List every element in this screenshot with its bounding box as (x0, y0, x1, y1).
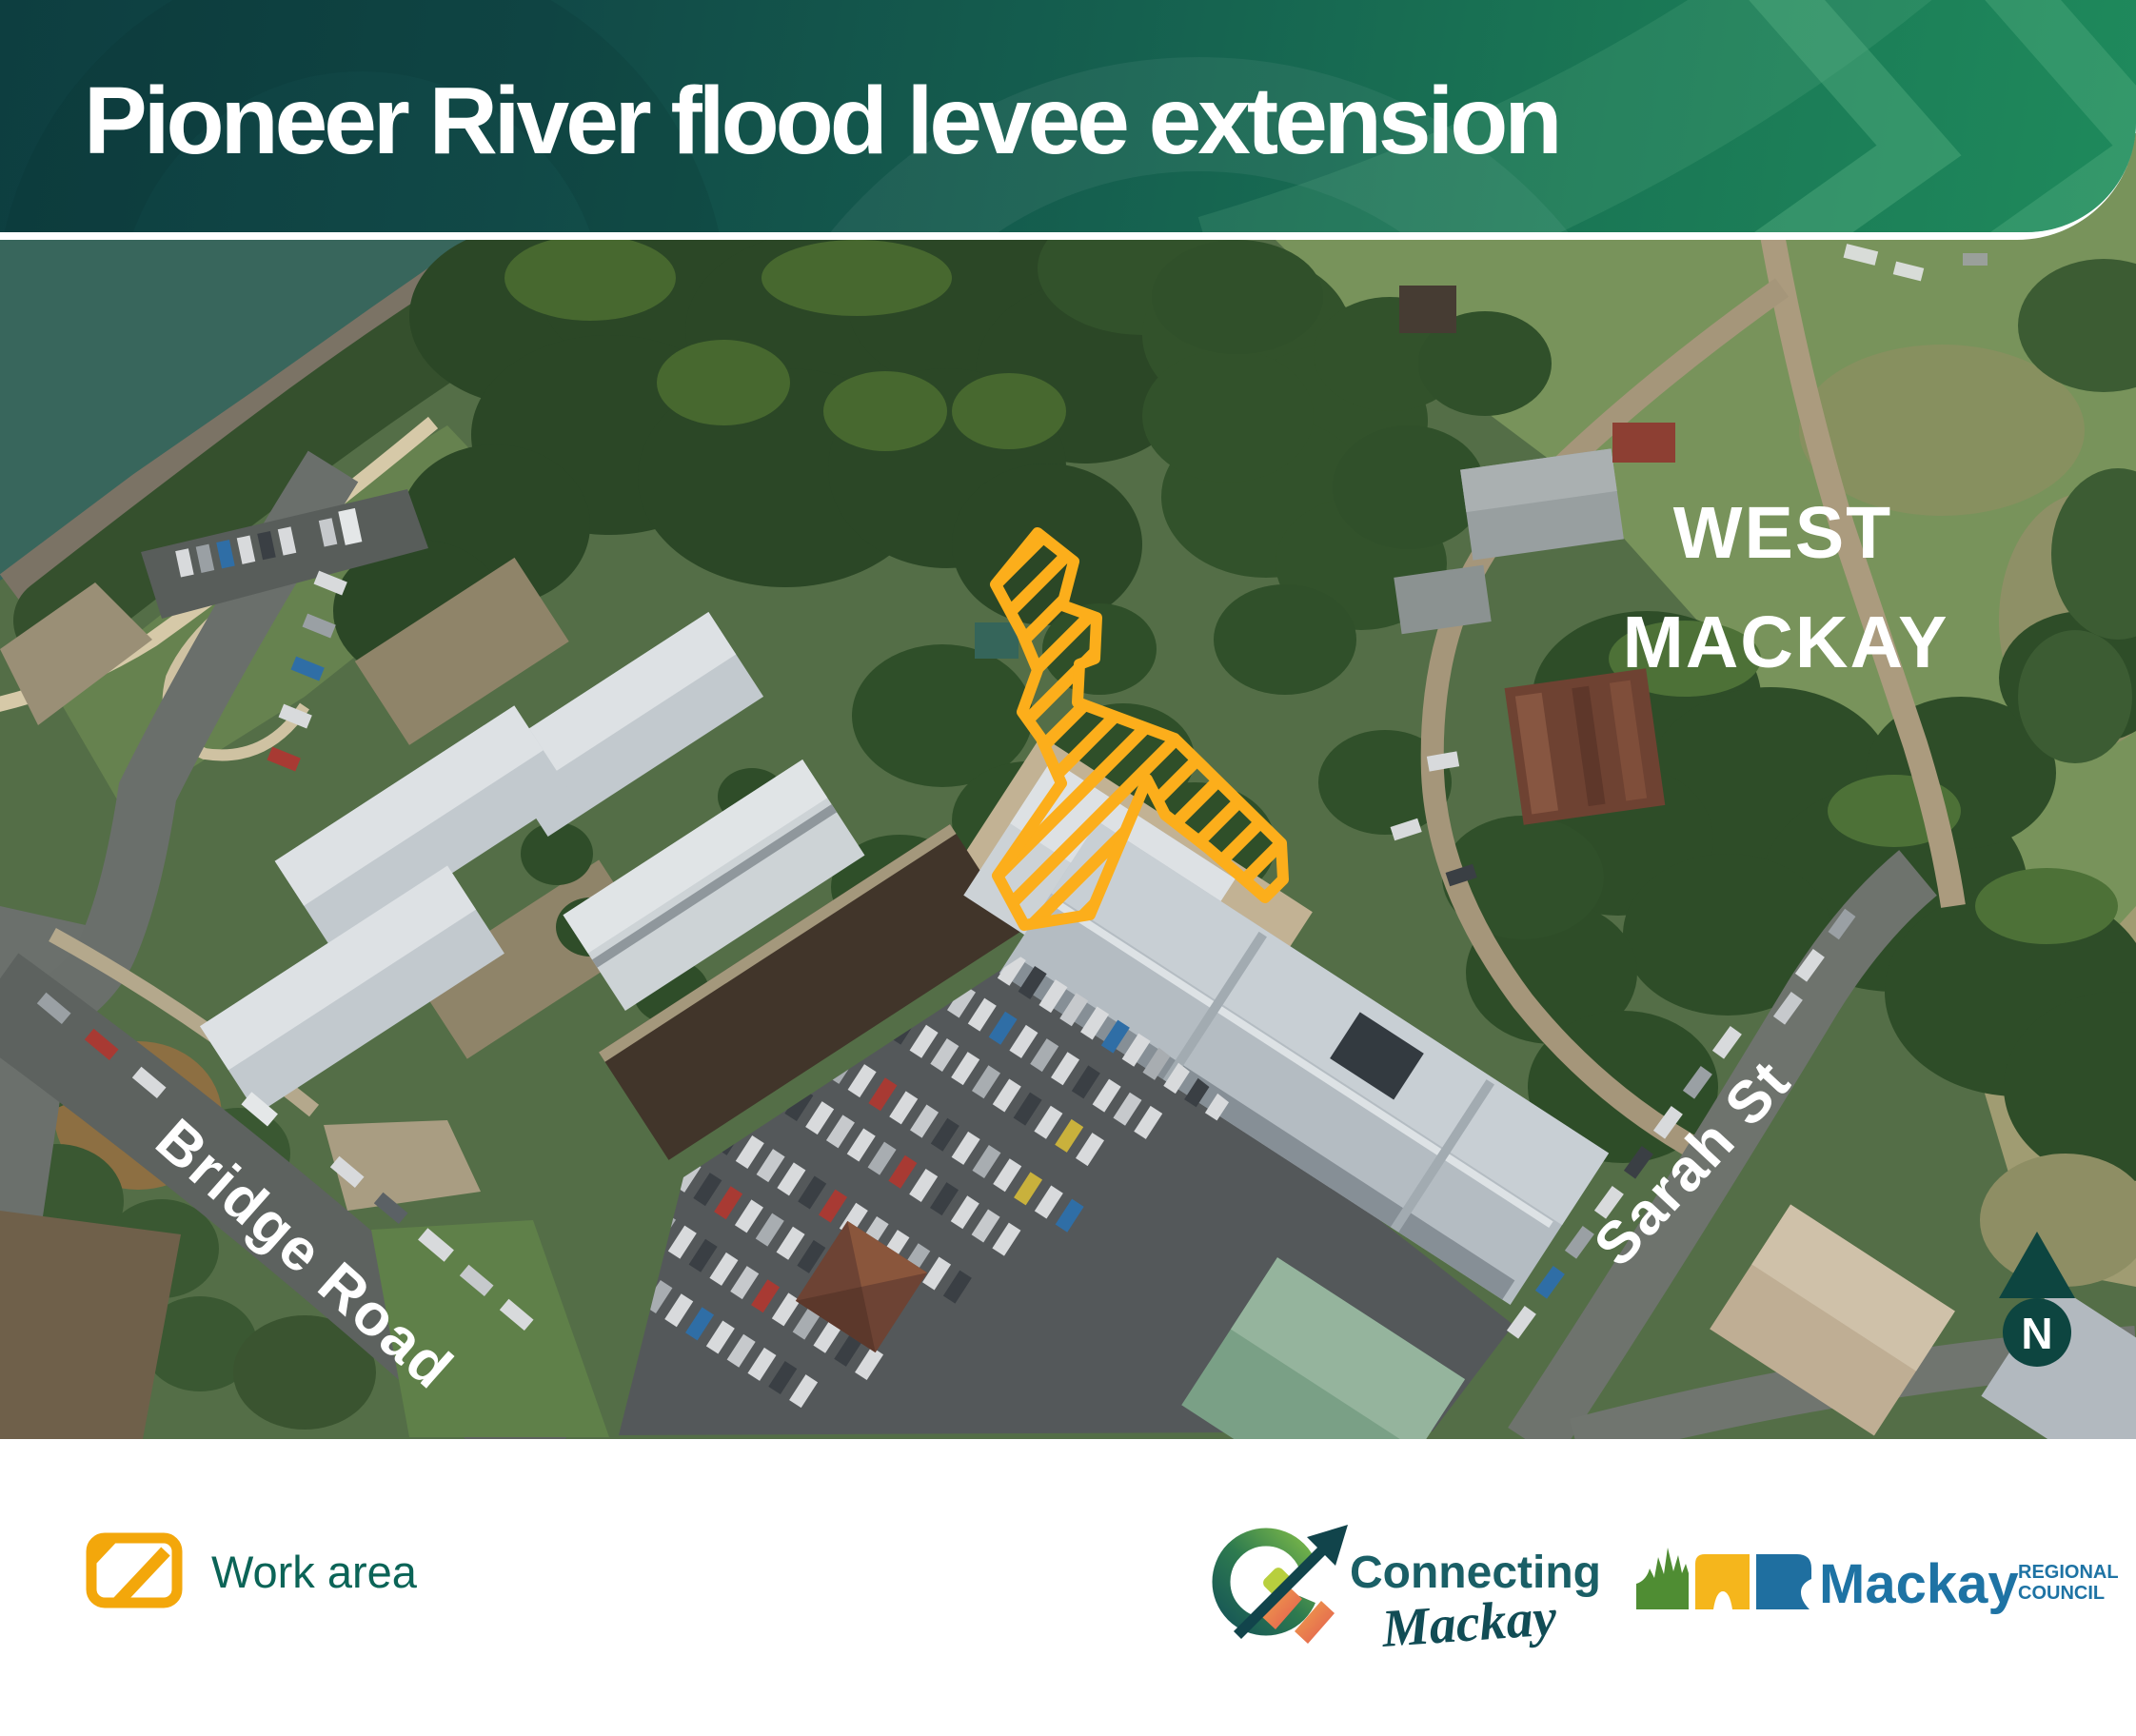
svg-text:COUNCIL: COUNCIL (2018, 1583, 2105, 1604)
svg-text:N: N (2021, 1309, 2052, 1358)
svg-text:Work area: Work area (211, 1547, 418, 1597)
svg-text:MACKAY: MACKAY (1623, 602, 1949, 683)
svg-text:REGIONAL: REGIONAL (2018, 1562, 2119, 1583)
svg-text:Mackay: Mackay (1379, 1588, 1560, 1659)
svg-text:Connecting: Connecting (1350, 1548, 1601, 1598)
svg-text:WEST: WEST (1673, 492, 1892, 574)
svg-text:Mackay: Mackay (1819, 1553, 2019, 1615)
